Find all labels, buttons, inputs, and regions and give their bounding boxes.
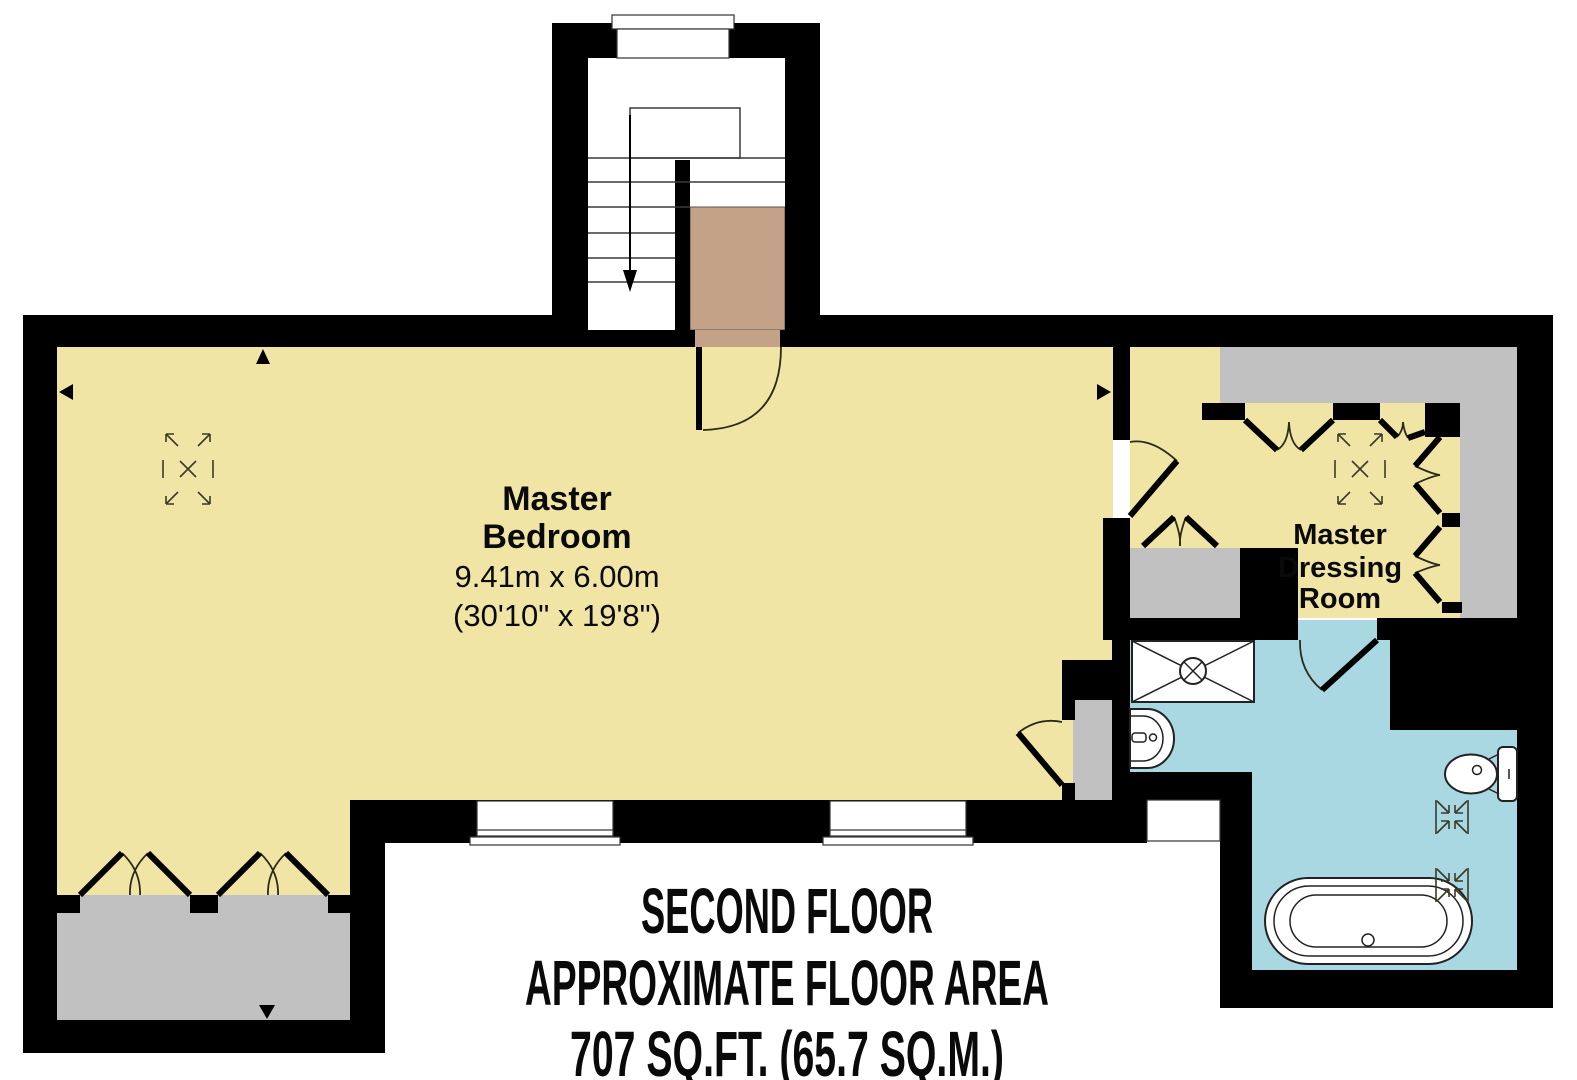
wall-segment: [1442, 602, 1462, 613]
shower-fixture: [1132, 641, 1254, 702]
wall-segment: [1390, 640, 1460, 730]
wall-segment: [1425, 403, 1460, 437]
wall-segment: [1377, 618, 1460, 640]
wall-segment: [552, 23, 620, 58]
wall-segment: [1517, 347, 1553, 1008]
floorplan-drawing: Master Bedroom 9.41m x 6.00m (30'10" x 1…: [0, 0, 1577, 1080]
eaves-storage-top-floor: [1220, 347, 1517, 403]
eaves-storage-right-floor: [1460, 403, 1517, 618]
wall-segment: [1442, 513, 1460, 527]
master-bedroom-dim-imperial: (30'10" x 19'8"): [453, 598, 661, 633]
wall-segment: [588, 330, 695, 347]
wall-segment: [23, 315, 552, 347]
sink-fixture: [1130, 709, 1174, 768]
wall-segment: [1062, 698, 1075, 720]
floor-title: SECOND FLOOR: [641, 875, 933, 947]
wall-segment: [1220, 843, 1252, 1008]
wall-segment: [724, 23, 820, 58]
dressing-room-label: Master: [1293, 519, 1387, 551]
wall-segment: [1103, 518, 1130, 640]
master-bedroom-dim-metric: 9.41m x 6.00m: [454, 559, 659, 594]
wall-segment: [328, 895, 350, 913]
wall-segment: [785, 315, 1553, 347]
wall-segment: [1460, 618, 1517, 730]
stair-window: [612, 15, 734, 58]
master-bedroom-label2: Bedroom: [482, 518, 631, 556]
floor-area-label: APPROXIMATE FLOOR AREA: [525, 947, 1049, 1019]
wall-segment: [1202, 403, 1245, 420]
master-bedroom-label: Master: [502, 480, 612, 518]
balcony-storage-floor: [57, 895, 350, 1020]
wall-segment: [1147, 772, 1220, 800]
floor-area-value: 707 SQ.FT. (65.7 SQ.M.): [570, 1018, 1004, 1080]
stair-landing: [690, 207, 785, 330]
wall-segment: [785, 23, 820, 347]
bathroom-door-threshold: [1298, 620, 1377, 640]
dressing-room-label3: Room: [1299, 583, 1381, 615]
wall-segment: [1113, 772, 1147, 843]
wall-segment: [1333, 403, 1380, 420]
wall-segment: [1130, 618, 1298, 640]
dressing-room-label2: Dressing: [1278, 552, 1402, 584]
corner-closet-floor: [1073, 700, 1112, 802]
wall-segment: [1220, 772, 1252, 843]
wall-segment: [1252, 970, 1553, 1008]
wall-segment: [780, 330, 820, 347]
wall-segment: [23, 315, 57, 1053]
master-bedroom-floor-lower: [57, 347, 350, 895]
bedroom-window-1: [470, 801, 620, 845]
wall-segment: [675, 160, 690, 330]
wall-segment: [552, 23, 588, 347]
wall-segment: [1113, 347, 1130, 440]
stair-landing-doorway: [695, 330, 783, 347]
wall-segment: [1062, 783, 1075, 803]
wall-segment: [190, 895, 218, 913]
wall-segment: [23, 1020, 385, 1053]
bathtub-fixture: [1265, 878, 1472, 964]
floorplan-page: Master Bedroom 9.41m x 6.00m (30'10" x 1…: [0, 0, 1577, 1080]
wall-segment: [350, 800, 385, 1053]
hall-closet-floor: [1130, 548, 1240, 620]
shower-room-window: [1147, 800, 1220, 841]
wall-segment: [57, 895, 80, 913]
bedroom-window-2: [823, 801, 973, 845]
